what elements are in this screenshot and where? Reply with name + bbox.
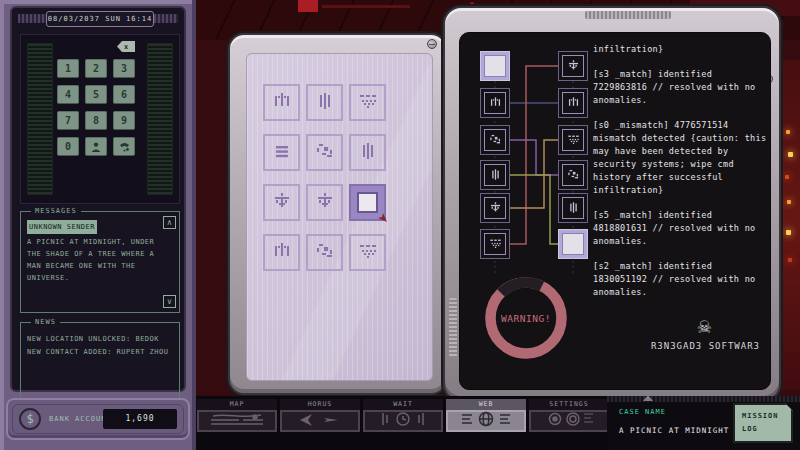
trident-glyph-icon: [272, 191, 292, 215]
key-4[interactable]: 4: [57, 85, 79, 104]
pillars-glyph-icon: [272, 91, 292, 115]
led-light: [787, 200, 791, 204]
message-body: A PICNIC AT MIDNIGHT, UNDER THE SHADE OF…: [27, 236, 159, 284]
warning-gauge: WARNING!: [478, 270, 574, 366]
game-screen: 08/03/2037 SUN 16:14 x 1234567890 MESSAG…: [0, 0, 800, 450]
globe-icon: [460, 411, 512, 431]
news-item: NEW LOCATION UNLOCKED: BEDOK: [27, 333, 173, 346]
scatter-glyph-icon: [315, 141, 335, 165]
background-red-pipe: [322, 5, 410, 8]
key-7[interactable]: 7: [57, 111, 79, 130]
log-entry: infiltration}: [593, 43, 767, 56]
keypad-panel: x 1234567890: [20, 34, 180, 204]
dots-glyph-icon: [489, 235, 502, 254]
news-box: NEWS NEW LOCATION UNLOCKED: BEDOK NEW CO…: [20, 322, 180, 400]
key-9[interactable]: 9: [113, 111, 135, 130]
puzzle-tile-bars[interactable]: [306, 84, 343, 121]
puzzle-tile-pillars[interactable]: [263, 234, 300, 271]
network-node-pillars: [558, 88, 588, 118]
speaker-grille: [27, 43, 53, 195]
node-core: [562, 233, 584, 255]
taskbar-button-settings[interactable]: SETTINGS: [529, 399, 609, 432]
network-node-dots: [558, 125, 588, 155]
puzzle-tile-pillars[interactable]: [263, 84, 300, 121]
dots-glyph-icon: [358, 241, 378, 265]
bars-glyph-icon: [315, 91, 335, 115]
warning-label: WARNING!: [478, 270, 574, 366]
key-8[interactable]: 8: [85, 111, 107, 130]
network-node-scatter: [480, 125, 510, 155]
key-2[interactable]: 2: [85, 59, 107, 78]
network-node-bars: [558, 193, 588, 223]
phone-icon: [118, 140, 131, 153]
plane-icon: [296, 412, 344, 431]
person-icon: [90, 141, 102, 153]
skull-icon: ☠: [697, 317, 712, 337]
dots-glyph-icon: [567, 131, 580, 150]
node-core: [484, 55, 506, 77]
led-light: [786, 230, 791, 235]
taskbar-button-map[interactable]: MAP: [197, 399, 277, 432]
case-name-label: CASE NAME: [619, 408, 666, 416]
call-key[interactable]: [113, 137, 135, 156]
led-light: [786, 130, 790, 134]
log-entry: [s0 _mismatch] 4776571514 mismatch detec…: [593, 119, 767, 197]
taskbar-button-label: WAIT: [363, 399, 443, 410]
taskbar-button-wait[interactable]: WAIT: [363, 399, 443, 432]
bank-balance: 1,690: [103, 409, 177, 429]
messages-title: MESSAGES: [31, 207, 81, 215]
brand-name: R3N3GAD3 SOFTWAR3: [651, 341, 760, 351]
led-light: [788, 258, 792, 262]
puzzle-tile-trident[interactable]: [263, 184, 300, 221]
mission-log-button[interactable]: MISSION LOG: [733, 403, 793, 443]
pillars-glyph-icon: [567, 94, 580, 113]
network-node-selected: [558, 229, 588, 259]
puzzle-tile-selected[interactable]: [349, 184, 386, 221]
notch-icon: [643, 395, 653, 401]
led-light: [785, 175, 789, 179]
case-box: CASE NAME A PICNIC AT MIDNIGHT MISSION L…: [607, 396, 800, 450]
bottom-dock: MAP HORUS WAIT WEB SETTINGS CASE NAME A …: [196, 396, 800, 450]
dots-glyph-icon: [358, 91, 378, 115]
scatter-glyph-icon: [567, 166, 580, 185]
taskbar-button-horus[interactable]: HORUS: [280, 399, 360, 432]
cursor-icon: [378, 213, 387, 222]
bars-glyph-icon: [489, 166, 502, 185]
vent-ridge: [449, 298, 457, 358]
clock-icon: [379, 411, 427, 431]
network-node-scatter: [558, 160, 588, 190]
bars-glyph-icon: [358, 141, 378, 165]
network-node-dots: [480, 229, 510, 259]
trident-glyph-icon: [567, 57, 580, 76]
puzzle-tile-bars[interactable]: [349, 134, 386, 171]
bars-glyph-icon: [567, 199, 580, 218]
trident-glyph-icon: [489, 199, 502, 218]
background-led-column: [778, 60, 800, 390]
news-item: NEW CONTACT ADDED: RUPERT ZHOU: [27, 346, 173, 359]
scatter-glyph-icon: [489, 131, 502, 150]
led-light: [788, 152, 793, 157]
dials-icon: [543, 411, 595, 431]
key-6[interactable]: 6: [113, 85, 135, 104]
status-bar: 08/03/2037 SUN 16:14: [46, 11, 154, 27]
terminal-device: infiltration}[s3 _match] identified 7229…: [443, 6, 781, 402]
backspace-key[interactable]: x: [117, 41, 135, 52]
puzzle-tile-scatter[interactable]: [306, 234, 343, 271]
pillars-glyph-icon: [489, 94, 502, 113]
key-3[interactable]: 3: [113, 59, 135, 78]
news-title: NEWS: [31, 318, 60, 326]
phone-screen: 08/03/2037 SUN 16:14 x 1234567890 MESSAG…: [10, 6, 186, 392]
network-node-trident: [558, 51, 588, 81]
puzzle-tile-equals[interactable]: [263, 134, 300, 171]
background-red-light: [298, 0, 318, 12]
key-5[interactable]: 5: [85, 85, 107, 104]
taskbar-button-label: WEB: [446, 399, 526, 410]
messages-box: MESSAGES ∧ ∨ UNKNOWN SENDER A PICNIC AT …: [20, 211, 180, 313]
network-node-pillars: [480, 88, 510, 118]
message-sender[interactable]: UNKNOWN SENDER: [27, 220, 97, 234]
log-entry: [s5 _match] identified 4818801631 // res…: [593, 209, 767, 248]
scroll-up-button[interactable]: ∧: [163, 216, 176, 229]
tile-core: [357, 192, 378, 213]
screw-icon: [427, 39, 437, 49]
contact-key[interactable]: [85, 137, 107, 156]
dollar-icon: $: [19, 408, 41, 430]
terminal-screen: infiltration}[s3 _match] identified 7229…: [459, 32, 771, 390]
infiltration-log: infiltration}[s3 _match] identified 7229…: [593, 43, 767, 311]
vent-ridge: [585, 11, 671, 19]
date-text: 08/03/2037: [48, 15, 100, 23]
scroll-down-button[interactable]: ∨: [163, 295, 176, 308]
network-node-bars: [480, 160, 510, 190]
pillars-glyph-icon: [272, 241, 292, 265]
key-1[interactable]: 1: [57, 59, 79, 78]
puzzle-tile-trident[interactable]: [306, 184, 343, 221]
taskbar-button-label: SETTINGS: [529, 399, 609, 410]
key-0[interactable]: 0: [57, 137, 79, 156]
phone-panel: 08/03/2037 SUN 16:14 x 1234567890 MESSAG…: [0, 0, 196, 450]
puzzle-tile-scatter[interactable]: [306, 134, 343, 171]
network-node-selected: [480, 51, 510, 81]
log-entry: [s2 _match] identified 1830051192 // res…: [593, 260, 767, 299]
log-entry: [s3 _match] identified 7229863816 // res…: [593, 68, 767, 107]
puzzle-device: [228, 33, 447, 395]
network-node-trident: [480, 193, 510, 223]
map-icon: [209, 412, 265, 431]
trident-glyph-icon: [315, 191, 335, 215]
scatter-glyph-icon: [315, 241, 335, 265]
puzzle-tile-dots[interactable]: [349, 84, 386, 121]
taskbar-button-label: HORUS: [280, 399, 360, 410]
speaker-grille: [147, 43, 173, 195]
case-name-value: A PICNIC AT MIDNIGHT: [619, 426, 729, 435]
taskbar-button-label: MAP: [197, 399, 277, 410]
bank-account-bar: $ BANK ACCOUNT 1,690: [6, 398, 190, 440]
day-text: SUN: [105, 15, 121, 23]
puzzle-tile-dots[interactable]: [349, 234, 386, 271]
taskbar-button-web[interactable]: WEB: [446, 399, 526, 432]
equals-glyph-icon: [272, 141, 292, 165]
case-ridge: [607, 396, 800, 402]
time-text: 16:14: [126, 15, 152, 23]
